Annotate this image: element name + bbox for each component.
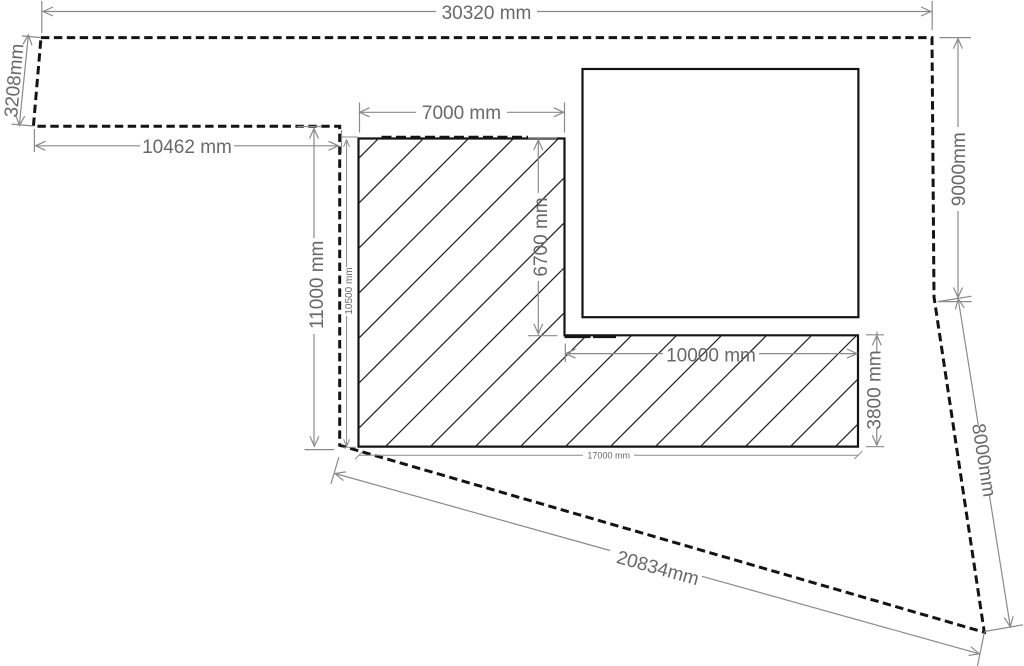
svg-text:11000 mm: 11000 mm bbox=[307, 241, 328, 329]
svg-text:10462 mm: 10462 mm bbox=[142, 137, 232, 158]
svg-text:10500 mm: 10500 mm bbox=[344, 267, 355, 314]
svg-text:10000 mm: 10000 mm bbox=[666, 345, 756, 366]
svg-text:9000mm: 9000mm bbox=[949, 132, 970, 206]
svg-text:17000 mm: 17000 mm bbox=[587, 451, 630, 461]
svg-text:7000 mm: 7000 mm bbox=[422, 103, 501, 124]
svg-text:3800 mm: 3800 mm bbox=[865, 350, 886, 429]
svg-text:6700 mm: 6700 mm bbox=[531, 197, 552, 276]
svg-text:30320 mm: 30320 mm bbox=[442, 3, 532, 24]
